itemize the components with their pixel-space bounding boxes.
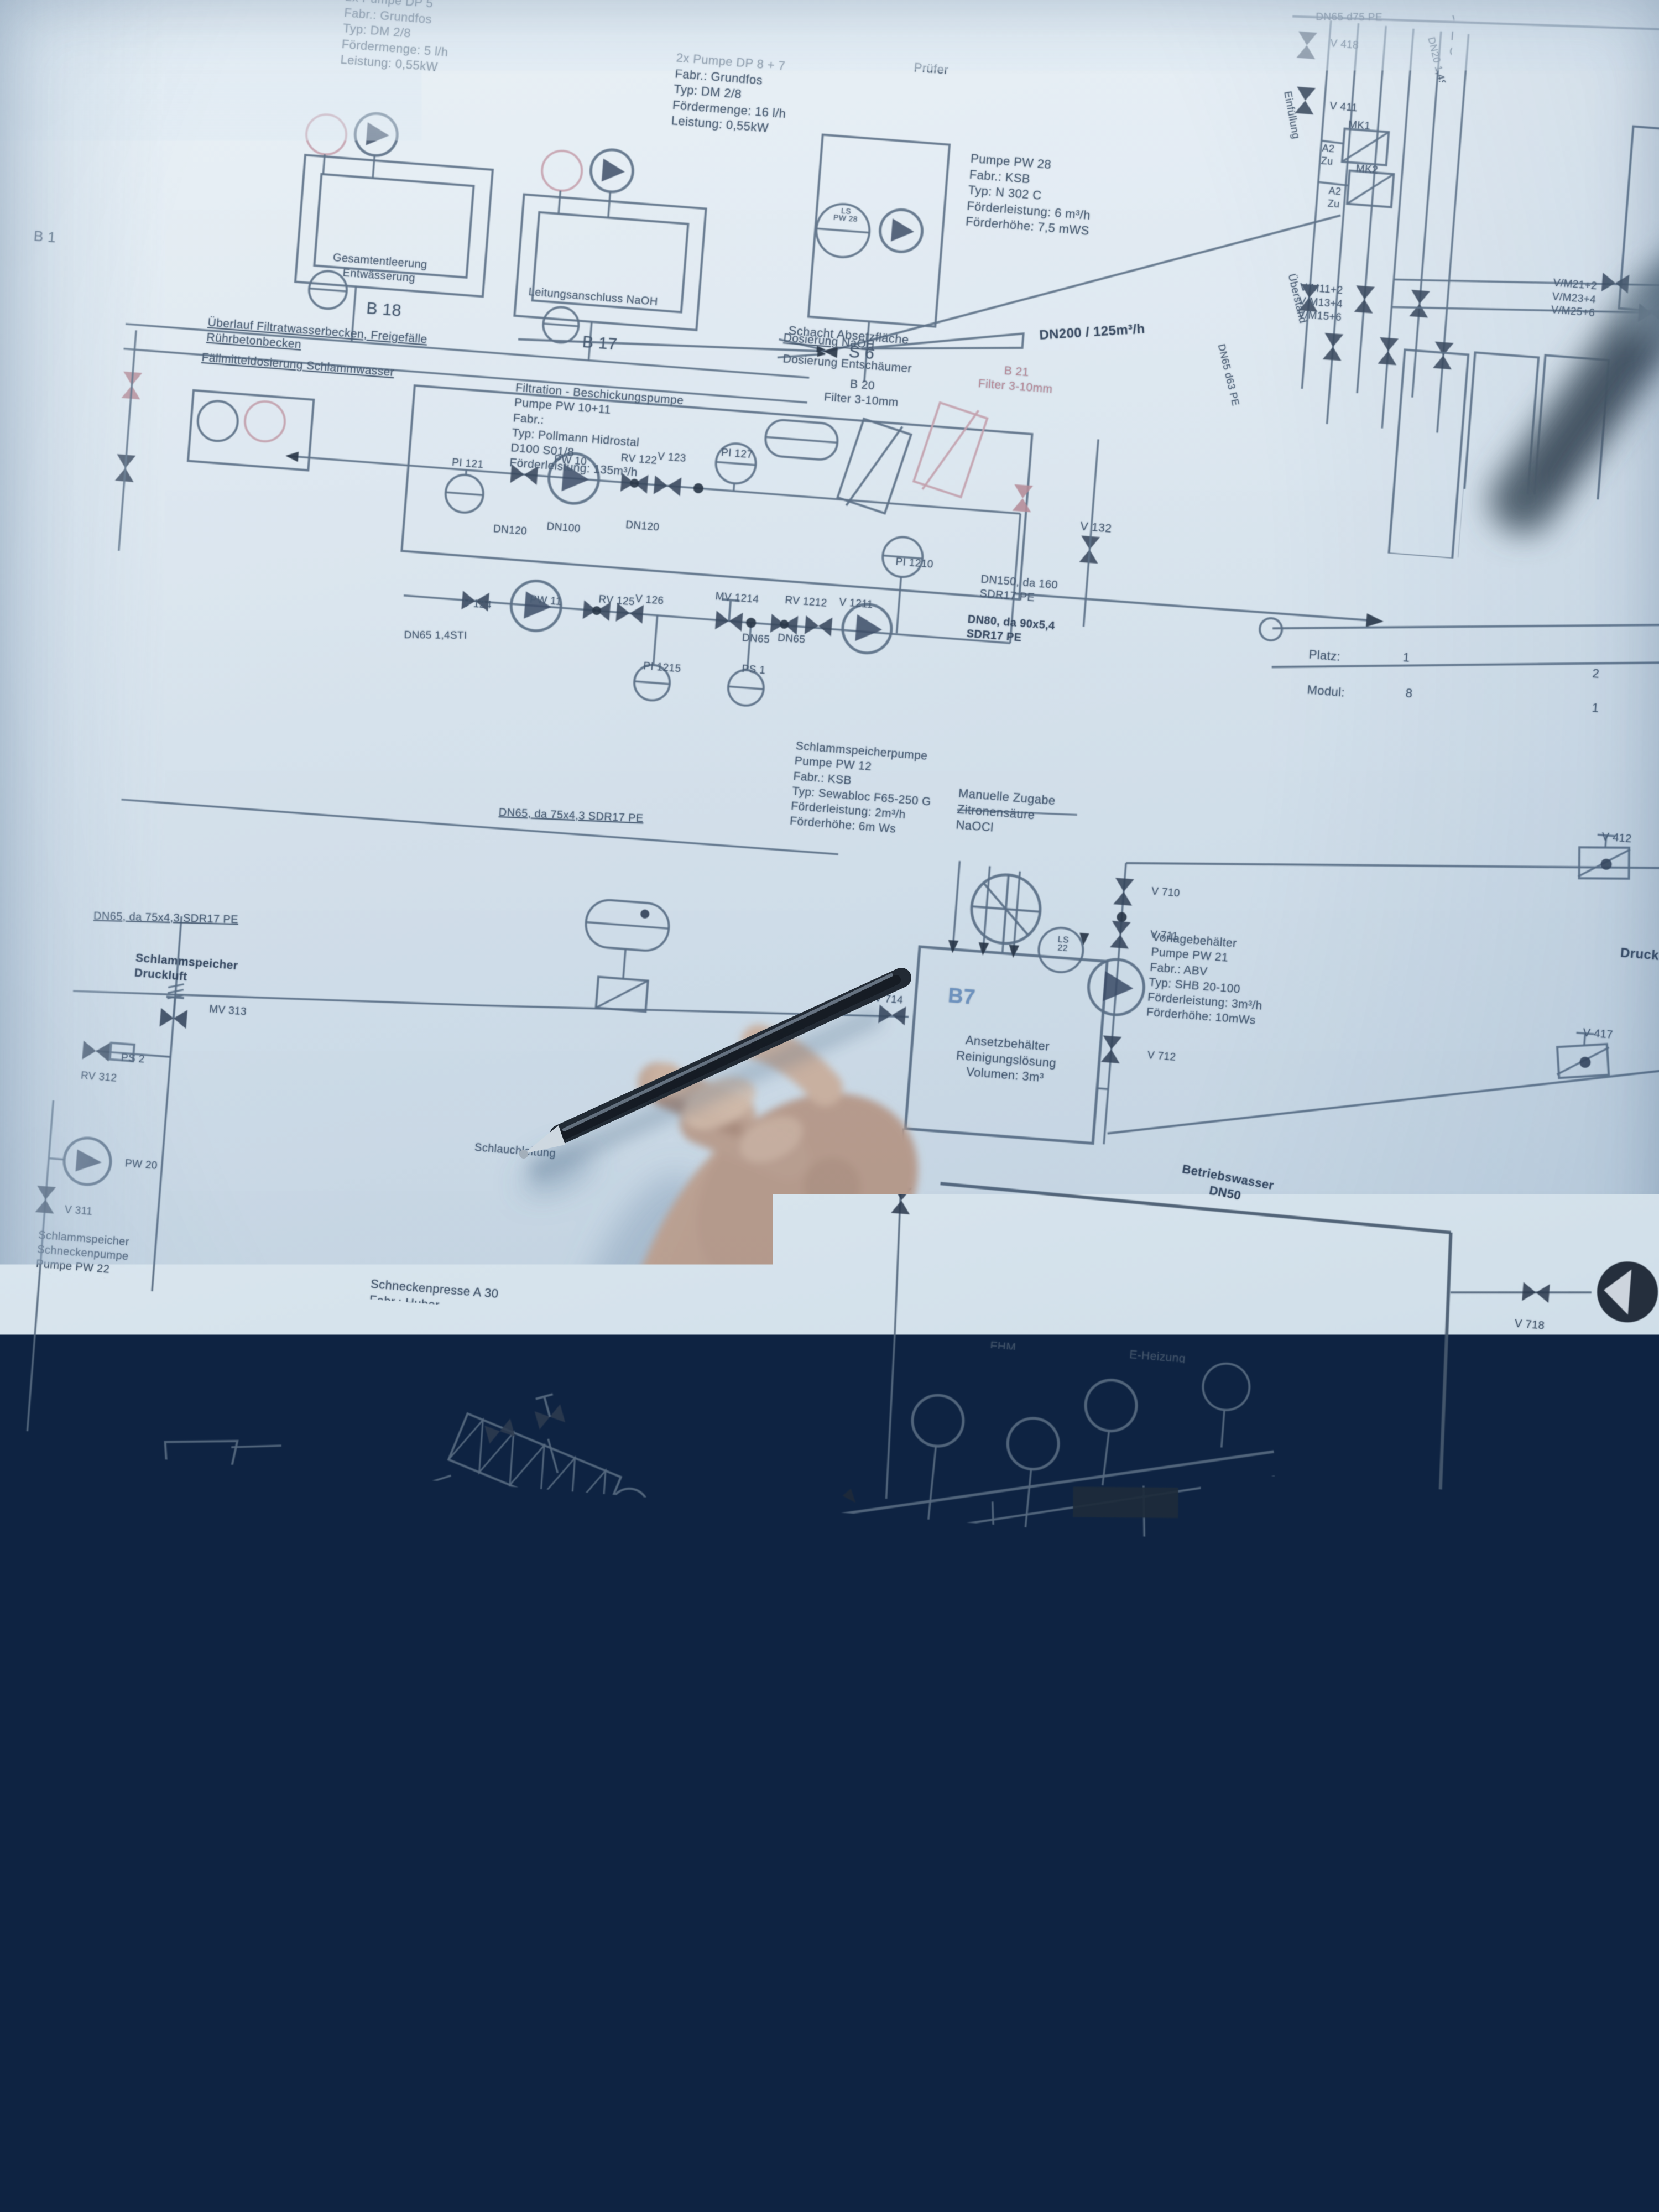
foreground-layer — [0, 0, 1659, 2212]
blurred-object-top-right — [1524, 260, 1659, 500]
photo-scene: 2x Pumpe DP 5 Fabr.: Grundfos Typ: DM 2/… — [0, 0, 1659, 2212]
